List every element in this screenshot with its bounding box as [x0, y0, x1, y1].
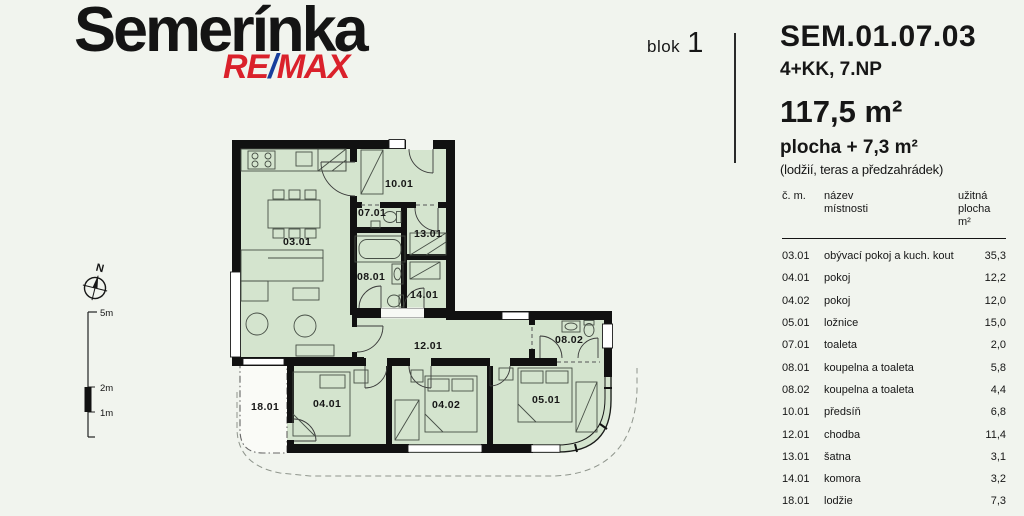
unit-extra-area: plocha + 7,3 m² [780, 137, 1020, 159]
table-cell-ar: 11,4 [958, 429, 1006, 441]
table-row: 14.01komora3,2 [782, 468, 1006, 490]
col-area-line1: užitná [958, 190, 1006, 203]
room-label-bed1: 04.01 [313, 398, 341, 410]
room-label-closet: 13.01 [414, 228, 442, 240]
scale-1m-label: 1m [100, 408, 113, 419]
table-cell-no: 03.01 [782, 250, 824, 262]
room-label-bed3: 05.01 [532, 394, 560, 406]
table-cell-nm: ložnice [824, 317, 958, 329]
header-divider [734, 33, 736, 163]
scale-2m-label: 2m [100, 383, 113, 394]
room-table-header: č. m. název místnosti užitná plocha m² [782, 190, 1006, 229]
table-cell-no: 10.01 [782, 406, 824, 418]
table-cell-nm: toaleta [824, 339, 958, 351]
room-label-wc: 07.01 [358, 207, 386, 219]
entrance-opening [406, 139, 433, 150]
room-table: č. m. název místnosti užitná plocha m² 0… [782, 190, 1006, 513]
table-row: 08.01koupelna a toaleta5,8 [782, 356, 1006, 378]
col-area: užitná plocha m² [958, 190, 1006, 229]
table-cell-nm: koupelna a toaleta [824, 384, 958, 396]
col-room-name: název místnosti [824, 190, 958, 229]
remax-logo: RE/MAX [223, 48, 349, 87]
unit-layout: 4+KK, 7.NP [780, 59, 1020, 81]
table-cell-no: 05.01 [782, 317, 824, 329]
col-room-name-line1: název [824, 190, 958, 203]
table-cell-nm: pokoj [824, 295, 958, 307]
remax-logo-max: MAX [277, 48, 350, 86]
block-word: blok [647, 37, 680, 57]
block-label: blok 1 [647, 27, 703, 60]
table-row: 08.02koupelna a toaleta4,4 [782, 379, 1006, 401]
remax-logo-re: RE [223, 48, 268, 86]
floor-plan: 03.01 10.01 07.01 13.01 08.01 14.01 12.0… [222, 126, 646, 490]
unit-info: SEM.01.07.03 4+KK, 7.NP 117,5 m² plocha … [780, 20, 1020, 177]
table-cell-no: 12.01 [782, 429, 824, 441]
table-cell-ar: 4,4 [958, 384, 1006, 396]
compass-icon: N [76, 258, 116, 306]
table-row: 04.01pokoj12,2 [782, 267, 1006, 289]
table-cell-nm: obývací pokoj a kuch. kout [824, 250, 958, 262]
table-cell-no: 04.02 [782, 295, 824, 307]
floorplan-sheet: { "header": { "project_title": "Semerínk… [0, 0, 1024, 516]
scale-bar: 5m 2m 1m [80, 305, 128, 443]
scale-5m-label: 5m [100, 308, 113, 319]
room-label-loggia: 18.01 [251, 401, 279, 413]
room-label-living: 03.01 [283, 236, 311, 248]
table-cell-nm: koupelna a toaleta [824, 362, 958, 374]
unit-code: SEM.01.07.03 [780, 20, 1020, 54]
table-cell-ar: 3,2 [958, 473, 1006, 485]
table-cell-ar: 12,2 [958, 272, 1006, 284]
room-table-rows: 03.01obývací pokoj a kuch. kout35,304.01… [782, 245, 1006, 513]
interior-door-gap [381, 308, 424, 319]
table-cell-ar: 7,3 [958, 495, 1006, 507]
table-row: 18.01lodžie7,3 [782, 490, 1006, 512]
room-label-storage: 14.01 [410, 289, 438, 301]
table-cell-ar: 5,8 [958, 362, 1006, 374]
table-cell-no: 18.01 [782, 495, 824, 507]
table-row: 12.01chodba11,4 [782, 423, 1006, 445]
unit-extra-area-note: (lodžií, teras a předzahrádek) [780, 162, 1020, 177]
table-cell-ar: 35,3 [958, 250, 1006, 262]
table-cell-no: 14.01 [782, 473, 824, 485]
table-cell-no: 04.01 [782, 272, 824, 284]
room-label-bath: 08.01 [357, 271, 385, 283]
room-label-corridor: 12.01 [414, 340, 442, 352]
table-cell-nm: lodžie [824, 495, 958, 507]
table-cell-ar: 12,0 [958, 295, 1006, 307]
table-row: 13.01šatna3,1 [782, 446, 1006, 468]
table-row: 05.01ložnice15,0 [782, 312, 1006, 334]
table-cell-no: 08.01 [782, 362, 824, 374]
room-label-bed2: 04.02 [432, 399, 460, 411]
table-cell-nm: chodba [824, 429, 958, 441]
table-cell-nm: předsíň [824, 406, 958, 418]
table-cell-ar: 15,0 [958, 317, 1006, 329]
remax-logo-slash: / [268, 48, 276, 86]
block-number: 1 [687, 27, 703, 60]
room-label-hall: 10.01 [385, 178, 413, 190]
table-row: 10.01předsíň6,8 [782, 401, 1006, 423]
room-label-bath2: 08.02 [555, 334, 583, 346]
unit-area: 117,5 m² [780, 94, 1020, 130]
table-cell-ar: 2,0 [958, 339, 1006, 351]
table-cell-ar: 3,1 [958, 451, 1006, 463]
table-rule [782, 238, 1006, 239]
col-room-name-line2: místnosti [824, 203, 958, 216]
table-cell-no: 08.02 [782, 384, 824, 396]
table-cell-nm: pokoj [824, 272, 958, 284]
table-cell-nm: komora [824, 473, 958, 485]
table-cell-nm: šatna [824, 451, 958, 463]
table-cell-no: 13.01 [782, 451, 824, 463]
table-row: 03.01obývací pokoj a kuch. kout35,3 [782, 245, 1006, 267]
table-row: 04.02pokoj12,0 [782, 290, 1006, 312]
table-row: 07.01toaleta2,0 [782, 334, 1006, 356]
col-area-line2: plocha m² [958, 203, 1006, 229]
table-cell-no: 07.01 [782, 339, 824, 351]
compass-north-label: N [95, 262, 106, 276]
col-room-no: č. m. [782, 190, 824, 229]
table-cell-ar: 6,8 [958, 406, 1006, 418]
